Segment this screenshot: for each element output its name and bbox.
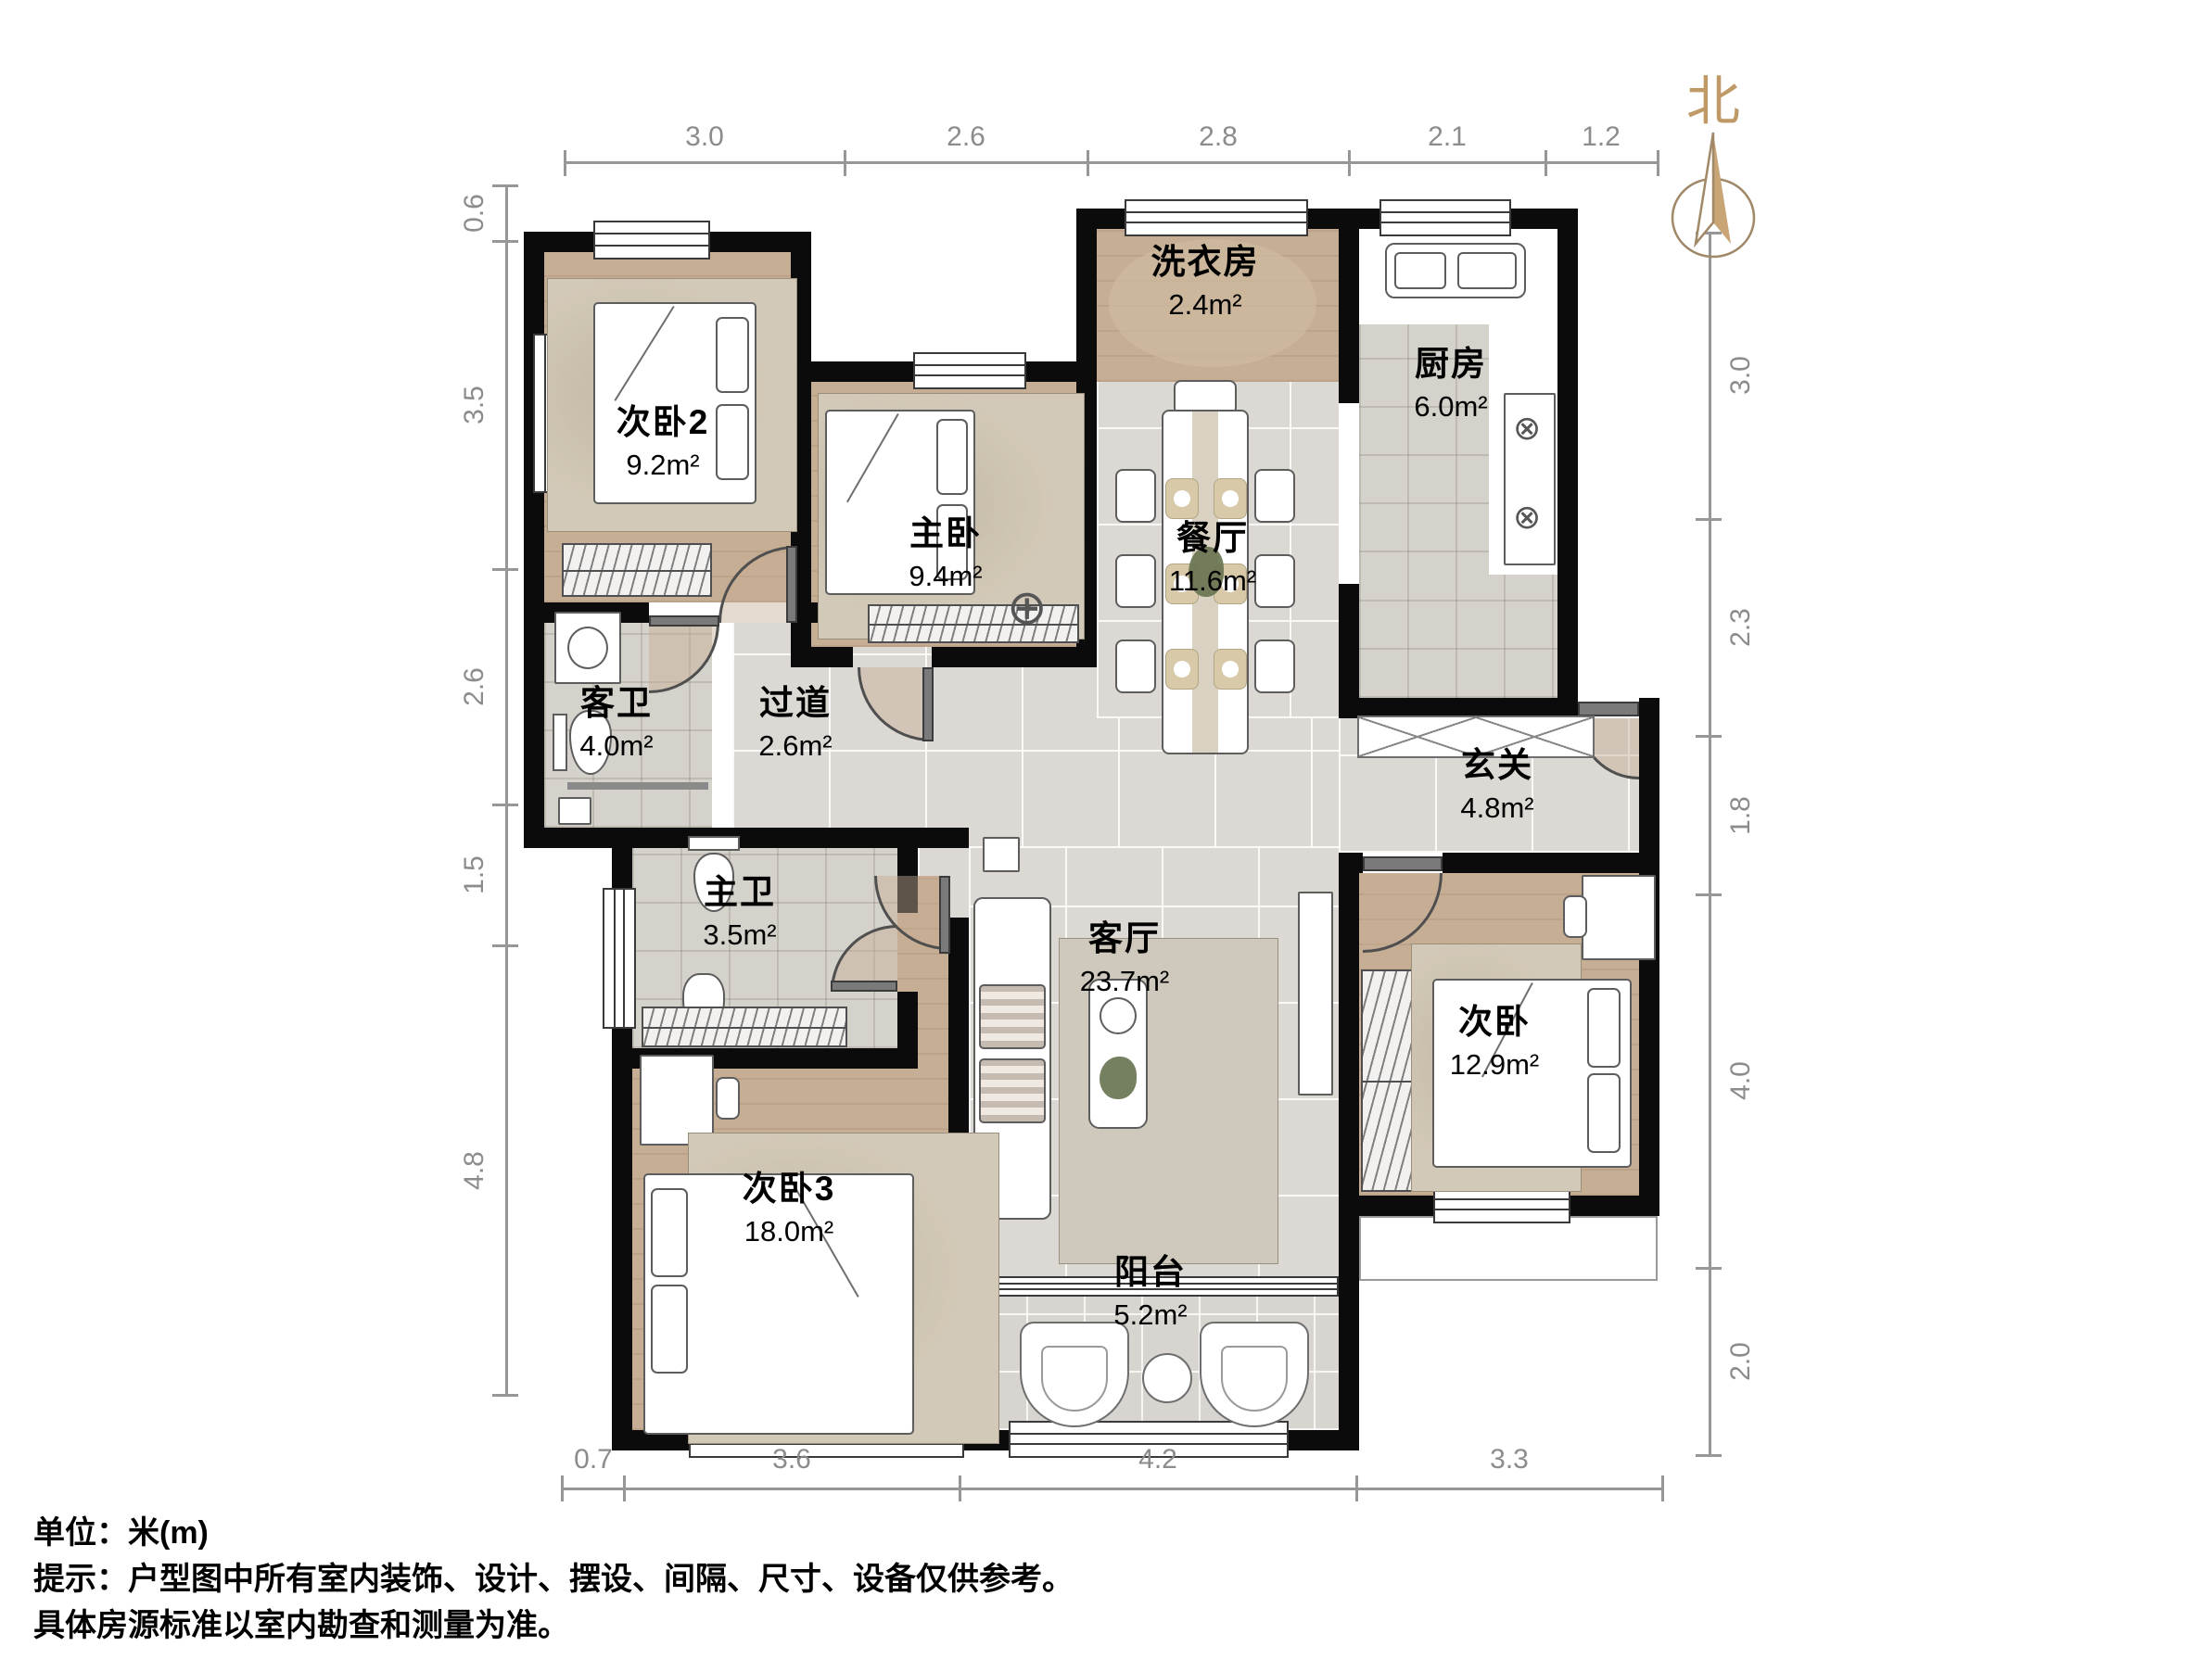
wall (791, 647, 853, 667)
dim-label: 2.1 (1428, 121, 1467, 153)
door-leaf-entry (1578, 702, 1639, 716)
dim-label: 3.3 (1490, 1444, 1529, 1475)
room-name: 次卧3 (743, 1160, 836, 1210)
dim-tick (492, 240, 518, 243)
dim-label: 3.0 (1725, 356, 1757, 395)
dim-tick (1696, 518, 1722, 521)
room-area: 4.8m² (1460, 792, 1533, 825)
room-name: 洗衣房 (1151, 234, 1260, 284)
stove-burner-icon: ⊗ (1513, 500, 1541, 534)
wall (1443, 853, 1659, 873)
wall-art (983, 837, 1020, 872)
note-tip: 提示：户型图中所有室内装饰、设计、摆设、间隔、尺寸、设备仅供参考。 (33, 1553, 1074, 1599)
dining-chair (1254, 554, 1295, 608)
dim-label: 0.7 (574, 1444, 613, 1475)
door-leaf (786, 546, 797, 623)
wall (1339, 853, 1363, 873)
balcony-chair (1200, 1322, 1309, 1427)
room-label-kitchen: 厨房 6.0m² (1414, 336, 1487, 424)
room-name: 次卧2 (617, 394, 710, 444)
balcony-chair (1020, 1322, 1129, 1427)
room-area: 6.0m² (1414, 390, 1487, 424)
sofa-cushion (979, 984, 1046, 1049)
room-name: 厨房 (1414, 336, 1487, 386)
window (603, 888, 636, 1029)
desk (1582, 875, 1656, 960)
wall (1639, 718, 1659, 1216)
balcony-table (1142, 1353, 1192, 1403)
room-area: 5.2m² (1113, 1298, 1187, 1332)
room-area: 18.0m² (743, 1215, 836, 1248)
room-label-entry: 玄关 4.8m² (1460, 737, 1533, 825)
dim-tick (1545, 150, 1547, 176)
room-label-bedroom3: 次卧3 18.0m² (743, 1160, 836, 1248)
dim-line-bottom (562, 1488, 1663, 1490)
wall (1339, 1196, 1359, 1450)
dim-tick (1696, 735, 1722, 738)
door-leaf (831, 981, 897, 992)
place-setting (1165, 649, 1199, 690)
dining-chair (1254, 640, 1295, 693)
toilet-tank (553, 714, 567, 771)
dim-tick (1355, 1475, 1358, 1501)
shower-bar (567, 782, 708, 790)
dim-label: 2.8 (1199, 121, 1238, 153)
dim-label: 2.0 (1725, 1342, 1757, 1381)
bath-fixture (558, 797, 591, 825)
dim-tick (492, 568, 518, 571)
wall (1076, 209, 1097, 382)
dim-line-left (505, 185, 508, 1396)
room-label-laundry: 洗衣房 2.4m² (1151, 234, 1260, 322)
exterior-ledge (1359, 1216, 1658, 1281)
window (913, 352, 1026, 389)
room-label-dining: 餐厅 11.6m² (1169, 510, 1256, 598)
dim-tick (1696, 893, 1722, 896)
dim-tick (564, 150, 566, 176)
wall (897, 992, 918, 1069)
table-plant (1100, 1057, 1137, 1099)
sink-basin (1394, 252, 1446, 289)
dim-tick (1087, 150, 1089, 176)
room-name: 主卧 (909, 505, 982, 555)
place-setting (1214, 649, 1247, 690)
dim-tick (844, 150, 846, 176)
wall (1639, 698, 1659, 718)
window (1433, 1186, 1570, 1223)
sink-basin (1457, 252, 1517, 289)
room-name: 餐厅 (1169, 510, 1256, 560)
stove-burner-icon: ⊗ (1513, 412, 1541, 445)
room-label-living: 客厅 23.7m² (1080, 910, 1169, 998)
room-name: 过道 (758, 675, 832, 725)
dim-label: 0.6 (459, 194, 490, 233)
pillow (651, 1188, 688, 1277)
dim-tick (1657, 150, 1659, 176)
pillow (716, 317, 749, 393)
toilet-tank (688, 836, 740, 851)
dim-tick (492, 944, 518, 947)
dim-label: 4.0 (1725, 1061, 1757, 1100)
dim-tick (492, 1394, 518, 1397)
window (593, 221, 710, 260)
dim-label: 2.6 (459, 667, 490, 706)
room-label-master-bedroom: 主卧 9.4m² (909, 505, 982, 593)
dim-tick (1661, 1475, 1664, 1501)
dining-chair (1115, 469, 1156, 523)
window (1379, 199, 1511, 236)
floorplan-page: ⊕ ⊗ ⊗ (0, 0, 2212, 1659)
dining-chair (1115, 640, 1156, 693)
dim-label: 2.6 (947, 121, 985, 153)
room-label-balcony: 阳台 5.2m² (1113, 1244, 1187, 1332)
dim-label: 1.8 (1725, 796, 1757, 835)
wall (1557, 209, 1578, 718)
room-name: 客厅 (1080, 910, 1169, 960)
dim-label: 3.5 (459, 386, 490, 424)
door-leaf (649, 615, 719, 627)
room-area: 2.6m² (758, 729, 832, 763)
wall (524, 232, 544, 848)
dim-tick (959, 1475, 961, 1501)
room-label-bedroom: 次卧 12.9m² (1450, 994, 1539, 1082)
dim-label: 3.0 (685, 121, 724, 153)
kitchen-tile-area2 (1359, 575, 1557, 698)
dim-tick (1696, 1454, 1722, 1457)
room-area: 12.9m² (1450, 1048, 1539, 1082)
dim-label: 4.8 (459, 1151, 490, 1190)
room-name: 主卫 (703, 864, 776, 914)
room-area: 3.5m² (703, 918, 776, 952)
wall (1339, 209, 1359, 403)
room-name: 玄关 (1460, 737, 1533, 787)
room-name: 阳台 (1113, 1244, 1187, 1294)
table-decor (1100, 997, 1137, 1034)
room-area: 4.0m² (579, 729, 653, 763)
tv-console (1298, 892, 1333, 1095)
pillow (1587, 988, 1621, 1068)
dim-tick (492, 184, 518, 187)
wardrobe (1361, 969, 1413, 1192)
dining-chair (1115, 554, 1156, 608)
door-leaf (1363, 856, 1443, 871)
dim-label: 1.2 (1582, 121, 1621, 153)
dim-label: 4.2 (1138, 1444, 1177, 1475)
wardrobe (868, 604, 1079, 643)
room-area: 23.7m² (1080, 965, 1169, 998)
desk-chair (716, 1077, 740, 1120)
door-leaf (922, 667, 934, 741)
room-label-hallway: 过道 2.6m² (758, 675, 832, 763)
note-unit: 单位：米(m) (33, 1507, 209, 1552)
dim-tick (561, 1475, 564, 1501)
sink (567, 627, 608, 669)
sofa-cushion (979, 1058, 1046, 1123)
wall (1339, 853, 1359, 1216)
room-label-guest-bath: 客卫 4.0m² (579, 675, 653, 763)
pillow (716, 404, 749, 480)
dim-label: 3.6 (772, 1444, 811, 1475)
dim-label: 2.3 (1725, 608, 1757, 647)
north-label: 北 (1686, 57, 1740, 135)
wall (932, 647, 1097, 667)
room-label-bedroom2: 次卧2 9.2m² (617, 394, 710, 482)
dim-tick (1696, 1267, 1722, 1270)
dim-tick (623, 1475, 626, 1501)
pillow (1587, 1073, 1621, 1153)
room-area: 2.4m² (1151, 288, 1260, 322)
note-tip2: 具体房源标准以室内勘查和测量为准。 (33, 1600, 569, 1645)
room-name: 客卫 (579, 675, 653, 725)
dim-line-right (1709, 233, 1711, 1456)
pillow (936, 419, 968, 495)
room-name: 次卧 (1450, 994, 1539, 1044)
room-area: 9.2m² (617, 449, 710, 482)
window (1125, 199, 1308, 236)
door-leaf (939, 876, 950, 954)
room-label-master-bath: 主卫 3.5m² (703, 864, 776, 952)
dim-label: 1.5 (459, 855, 490, 894)
dim-line-top (565, 161, 1659, 164)
north-compass-icon (1662, 125, 1764, 283)
wardrobe (562, 543, 712, 597)
dim-tick (1348, 150, 1351, 176)
pillow (651, 1285, 688, 1374)
desk-chair (1563, 895, 1587, 938)
room-area: 9.4m² (909, 560, 982, 593)
dim-tick (492, 804, 518, 806)
room-area: 11.6m² (1169, 564, 1256, 598)
wardrobe (642, 1007, 847, 1047)
ceiling-fixture-icon: ⊕ (1007, 584, 1048, 632)
dining-chair (1254, 469, 1295, 523)
